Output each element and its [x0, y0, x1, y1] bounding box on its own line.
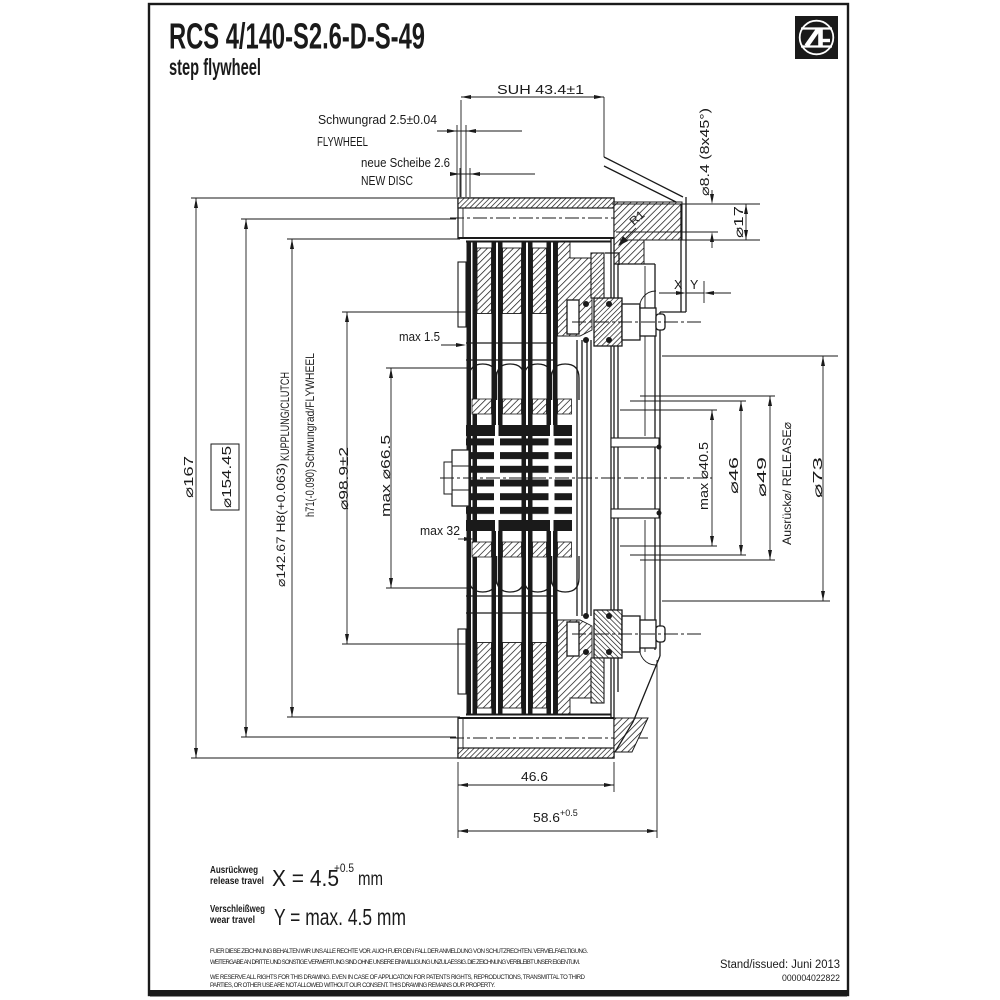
svg-text:PARTIES, OR OTHER USE ARE NOT: PARTIES, OR OTHER USE ARE NOT ALLOWED WI…	[210, 983, 495, 989]
svg-text:⌀154.45: ⌀154.45	[219, 446, 234, 508]
svg-text:max 32: max 32	[420, 524, 460, 538]
svg-text:NEW DISC: NEW DISC	[361, 174, 413, 188]
svg-text:Ausrück⌀/ RELEASE⌀: Ausrück⌀/ RELEASE⌀	[780, 422, 794, 545]
svg-text:Y = max. 4.5 mm: Y = max. 4.5 mm	[274, 904, 406, 930]
svg-text:mm: mm	[358, 869, 383, 890]
svg-text:SUH 43.4±1: SUH 43.4±1	[497, 83, 584, 97]
svg-text:Schwungrad 2.5±0.04: Schwungrad 2.5±0.04	[318, 113, 437, 127]
svg-text:58.6: 58.6	[533, 810, 560, 825]
svg-text:FLYWHEEL: FLYWHEEL	[317, 135, 368, 149]
svg-text:X = 4.5: X = 4.5	[272, 865, 339, 891]
svg-text:WE RESERVE ALL RIGHTS FOR THIS: WE RESERVE ALL RIGHTS FOR THIS DRAWING. …	[210, 975, 586, 981]
svg-text:KUPPLUNG/CLUTCH: KUPPLUNG/CLUTCH	[278, 372, 292, 461]
svg-text:neue Scheibe 2.6: neue Scheibe 2.6	[361, 156, 450, 170]
svg-text:h71(-0.090): h71(-0.090)	[303, 469, 317, 517]
svg-text:Stand/issued: Juni 2013: Stand/issued: Juni 2013	[720, 959, 840, 971]
svg-text:+0.5: +0.5	[560, 808, 578, 818]
svg-text:⌀46: ⌀46	[726, 457, 741, 494]
svg-text:X: X	[674, 278, 683, 292]
svg-text:wear travel: wear travel	[209, 914, 255, 926]
svg-text:000004022822: 000004022822	[782, 973, 840, 983]
svg-text:max 1.5: max 1.5	[399, 330, 440, 344]
svg-text:Schwungrad/FLYWHEEL: Schwungrad/FLYWHEEL	[303, 353, 317, 468]
svg-text:⌀167: ⌀167	[181, 456, 196, 498]
svg-text:⌀49: ⌀49	[754, 457, 769, 497]
svg-text:⌀142.67 H8(+0.063): ⌀142.67 H8(+0.063)	[274, 463, 288, 587]
svg-text:RCS 4/140-S2.6-D-S-49: RCS 4/140-S2.6-D-S-49	[169, 16, 425, 57]
svg-text:step flywheel: step flywheel	[169, 54, 261, 80]
svg-text:release travel: release travel	[210, 875, 264, 887]
svg-text:⌀17: ⌀17	[732, 206, 746, 238]
svg-text:max ⌀66.5: max ⌀66.5	[378, 435, 393, 517]
svg-text:⌀73: ⌀73	[810, 457, 825, 498]
svg-text:+0.5: +0.5	[334, 861, 354, 875]
svg-text:max ⌀40.5: max ⌀40.5	[697, 442, 711, 510]
svg-text:46.6: 46.6	[521, 769, 548, 784]
svg-text:⌀98.9±2: ⌀98.9±2	[336, 447, 351, 510]
svg-text:Y: Y	[690, 278, 699, 292]
svg-text:FUER DIESE ZEICHNUNG BEHALTEN: FUER DIESE ZEICHNUNG BEHALTEN WIR UNS AL…	[210, 949, 588, 955]
svg-text:⌀8.4 (8x45°): ⌀8.4 (8x45°)	[698, 108, 712, 196]
svg-text:WEITERGABE AN DRITTE UND SONST: WEITERGABE AN DRITTE UND SONSTIGE VERWER…	[210, 960, 580, 966]
